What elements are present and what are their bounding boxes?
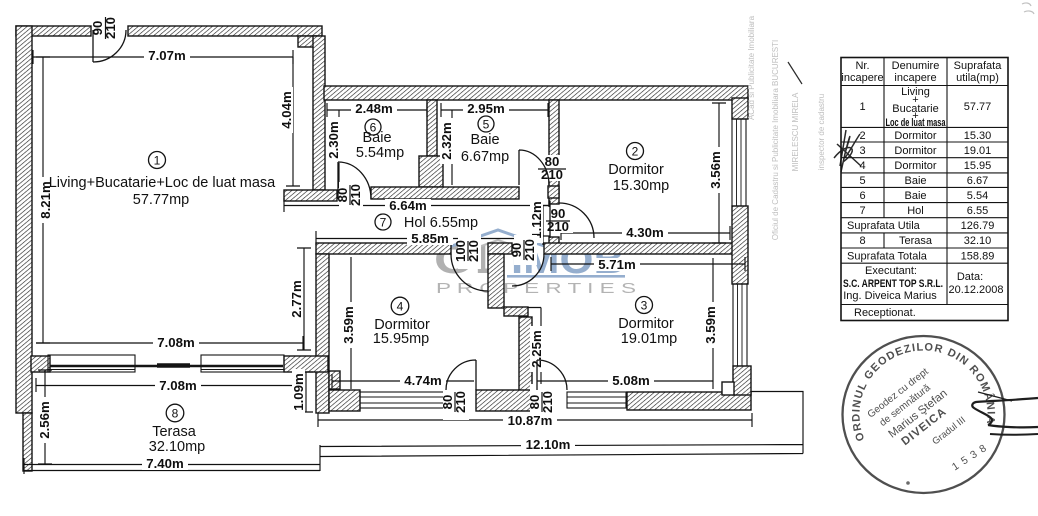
svg-text:Dormitor: Dormitor <box>618 316 674 332</box>
svg-text:3: 3 <box>641 299 648 313</box>
svg-text:7: 7 <box>859 205 865 217</box>
svg-text:6.55: 6.55 <box>967 205 988 217</box>
svg-text:Suprafata Totala: Suprafata Totala <box>847 251 928 263</box>
svg-text:15.95: 15.95 <box>964 160 992 172</box>
svg-text:Baie: Baie <box>904 175 926 187</box>
svg-text:incapere: incapere <box>841 72 883 84</box>
svg-text:1.12m: 1.12m <box>529 201 544 238</box>
svg-text:126.79: 126.79 <box>961 220 995 232</box>
svg-text:Hol 6.55mp: Hol 6.55mp <box>404 215 478 231</box>
svg-text:S.C. ARPENT TOP S.R.L.: S.C. ARPENT TOP S.R.L. <box>843 278 943 290</box>
svg-text:Suprafata Utila: Suprafata Utila <box>847 220 921 232</box>
svg-text:5: 5 <box>483 118 490 132</box>
svg-text:5.08m: 5.08m <box>612 373 649 388</box>
svg-text:1: 1 <box>154 154 161 168</box>
svg-text:2.48m: 2.48m <box>355 101 392 116</box>
svg-text:7.07m: 7.07m <box>148 48 185 63</box>
svg-text:7.08m: 7.08m <box>159 378 196 393</box>
svg-text:Dormitor: Dormitor <box>894 145 937 157</box>
svg-text:20.12.2008: 20.12.2008 <box>948 284 1003 296</box>
svg-text:5.85m: 5.85m <box>411 231 448 246</box>
svg-text:19.01mp: 19.01mp <box>621 331 677 347</box>
svg-text:5.54mp: 5.54mp <box>356 145 404 161</box>
svg-text:MIRELESCU MIRELA: MIRELESCU MIRELA <box>791 92 800 171</box>
svg-text:8: 8 <box>172 407 179 421</box>
svg-text:Receptionat.: Receptionat. <box>854 307 916 319</box>
svg-text:12.10m: 12.10m <box>526 437 571 452</box>
svg-text:1: 1 <box>859 101 865 113</box>
svg-text:6.64m: 6.64m <box>389 198 426 213</box>
svg-text:Baie: Baie <box>470 132 499 148</box>
svg-text:incapere: incapere <box>894 72 936 84</box>
svg-text:4.74m: 4.74m <box>404 373 441 388</box>
svg-text:8: 8 <box>859 235 865 247</box>
svg-text:4: 4 <box>859 160 865 172</box>
svg-text:5.71m: 5.71m <box>598 257 635 272</box>
svg-text:6.67: 6.67 <box>967 175 988 187</box>
svg-text:7.40m: 7.40m <box>146 456 183 471</box>
svg-text:19.01: 19.01 <box>964 145 992 157</box>
svg-text:4: 4 <box>397 300 404 314</box>
svg-text:15.30mp: 15.30mp <box>613 178 669 194</box>
svg-text:Data:: Data: <box>957 271 983 283</box>
svg-text:Dormitor: Dormitor <box>894 160 937 172</box>
svg-text:Oficiul de Cadastru si Publici: Oficiul de Cadastru si Publicitate Imobi… <box>771 40 780 241</box>
svg-text:5: 5 <box>859 175 865 187</box>
svg-text:6.67mp: 6.67mp <box>461 149 509 165</box>
svg-text:7.08m: 7.08m <box>157 335 194 350</box>
svg-text:57.77mp: 57.77mp <box>133 192 189 208</box>
svg-text:utila(mp): utila(mp) <box>956 72 999 84</box>
svg-text:3.59m: 3.59m <box>703 306 718 343</box>
svg-text:2.30m: 2.30m <box>326 121 341 158</box>
svg-text:Suprafata: Suprafata <box>954 60 1003 72</box>
svg-text:3: 3 <box>859 145 865 157</box>
svg-text:4.30m: 4.30m <box>626 225 663 240</box>
svg-text:32.10mp: 32.10mp <box>149 439 205 455</box>
svg-text:inspector de cadastru: inspector de cadastru <box>817 94 826 171</box>
svg-text:32.10: 32.10 <box>964 235 992 247</box>
svg-text:57.77: 57.77 <box>964 101 992 113</box>
svg-text:Hol: Hol <box>907 205 924 217</box>
svg-text:4.04m: 4.04m <box>279 91 294 128</box>
svg-text:Loc de luat masa: Loc de luat masa <box>886 117 947 129</box>
svg-text:15.30: 15.30 <box>964 130 992 142</box>
svg-text:2: 2 <box>859 130 865 142</box>
svg-text:Baie: Baie <box>904 190 926 202</box>
svg-text:Terasa: Terasa <box>899 235 933 247</box>
svg-text:3.59m: 3.59m <box>341 306 356 343</box>
svg-text:Nr.: Nr. <box>855 60 869 72</box>
svg-text:Dormitor: Dormitor <box>608 162 664 178</box>
svg-text:5.54: 5.54 <box>967 190 988 202</box>
svg-text:Living+Bucatarie+Loc de luat m: Living+Bucatarie+Loc de luat masa <box>49 175 276 191</box>
svg-text:Terasa: Terasa <box>152 424 196 440</box>
svg-text:Baie: Baie <box>362 130 391 146</box>
svg-text:2.32m: 2.32m <box>439 122 454 159</box>
svg-text:10.87m: 10.87m <box>508 413 553 428</box>
svg-text:2: 2 <box>632 145 639 159</box>
svg-text:Ing. Diveica Marius: Ing. Diveica Marius <box>843 290 937 302</box>
svg-text:3.56m: 3.56m <box>708 151 723 188</box>
svg-text:Executant:: Executant: <box>865 265 917 277</box>
svg-text:2.56m: 2.56m <box>37 401 52 438</box>
svg-text:6: 6 <box>859 190 865 202</box>
svg-text:158.89: 158.89 <box>961 251 995 263</box>
svg-text:Dormitor: Dormitor <box>894 130 937 142</box>
svg-text:2.77m: 2.77m <box>289 280 304 317</box>
svg-text:15.95mp: 15.95mp <box>373 331 429 347</box>
svg-text:7: 7 <box>380 216 387 230</box>
svg-text:2.95m: 2.95m <box>467 101 504 116</box>
svg-text:ACad si Publicitate Imobiliara: ACad si Publicitate Imobiliara <box>747 15 756 120</box>
svg-text:Denumire: Denumire <box>892 60 940 72</box>
svg-text:1.09m: 1.09m <box>291 373 306 410</box>
